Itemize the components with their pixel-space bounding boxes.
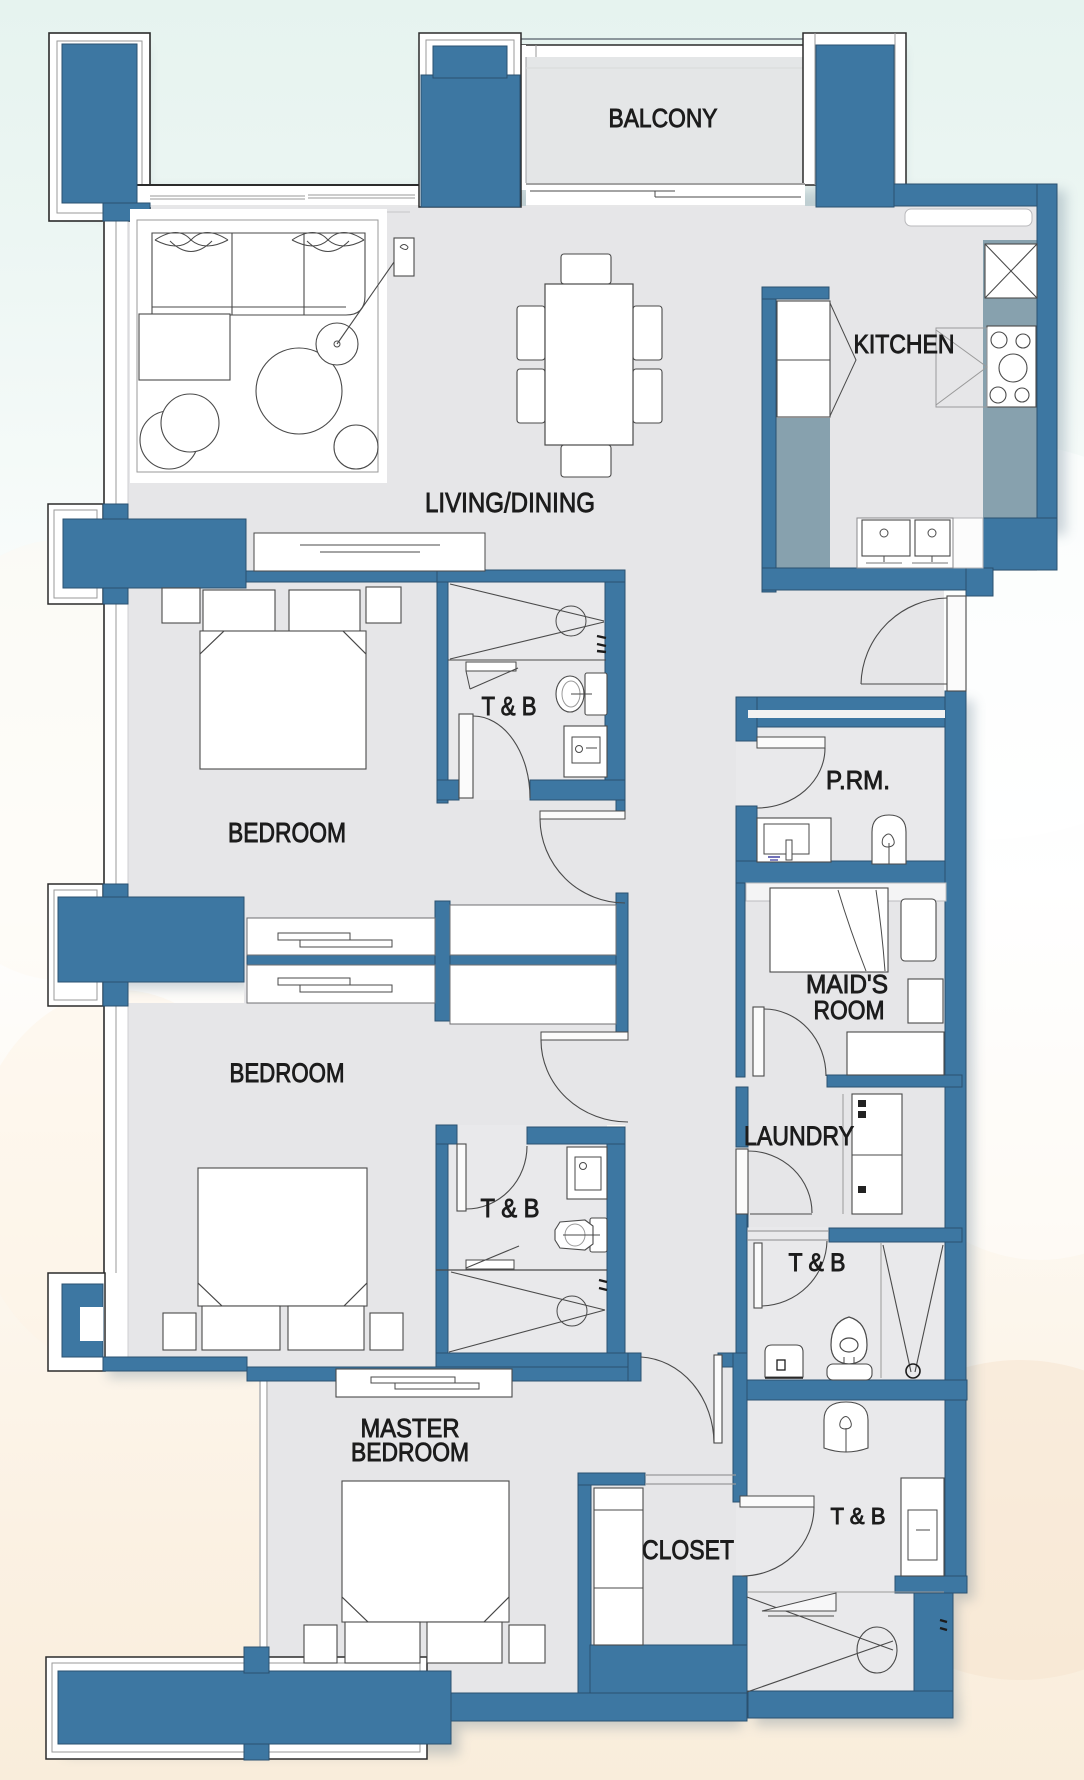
svg-text:ROOM: ROOM [814, 995, 885, 1025]
svg-text:KITCHEN: KITCHEN [854, 329, 955, 359]
svg-text:T & B: T & B [482, 691, 537, 721]
svg-text:BEDROOM: BEDROOM [228, 817, 346, 848]
svg-text:LIVING/DINING: LIVING/DINING [425, 487, 595, 518]
svg-text:BEDROOM: BEDROOM [230, 1058, 345, 1088]
svg-text:BEDROOM: BEDROOM [351, 1437, 469, 1467]
svg-text:T & B: T & B [481, 1193, 540, 1223]
svg-text:T & B: T & B [789, 1249, 846, 1277]
svg-text:P.RM.: P.RM. [826, 765, 890, 795]
svg-text:LAUNDRY: LAUNDRY [744, 1121, 854, 1151]
svg-text:T & B: T & B [831, 1503, 886, 1529]
svg-text:BALCONY: BALCONY [609, 103, 718, 133]
svg-text:CLOSET: CLOSET [642, 1535, 734, 1565]
